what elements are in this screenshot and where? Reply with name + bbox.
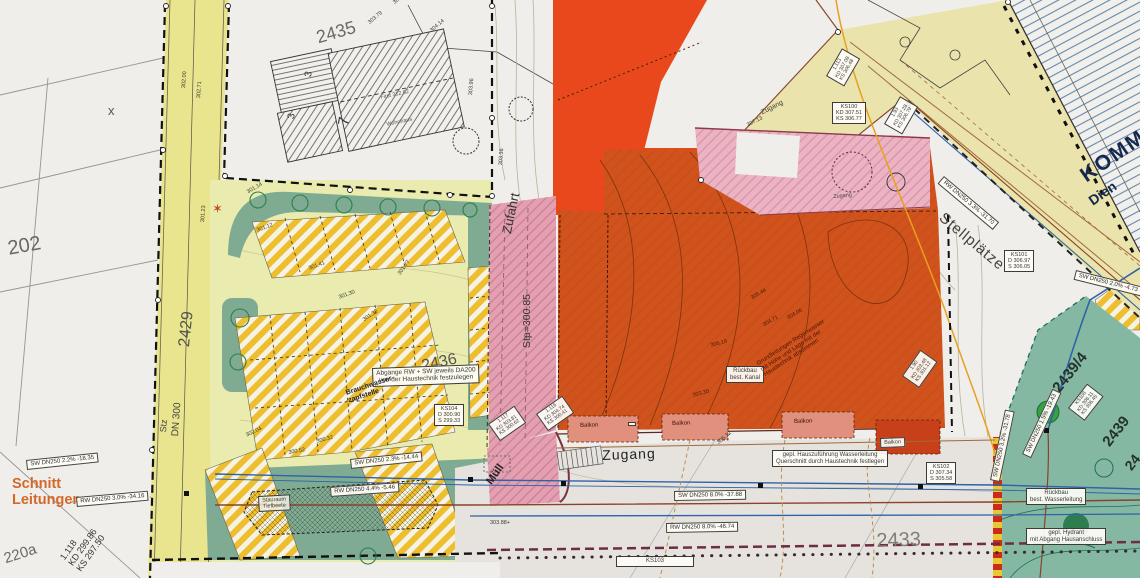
balkon-label-4: Balkon <box>880 437 905 448</box>
elev-30396: 303.96 <box>468 78 475 95</box>
dn300-label: DN 300 <box>170 402 184 437</box>
survey-star-icon: ✶ <box>212 202 223 217</box>
stz-label: Stz <box>158 419 169 433</box>
rueckbau-wasser-annotation: Rückbau best. Wasserleitung <box>1026 488 1086 505</box>
x-mark: x <box>108 104 115 119</box>
elev-30123: 301.23 <box>200 205 207 222</box>
schnitt-leitungen-label: Schnitt Leitungen <box>12 476 81 508</box>
shaft-ks104-box: KS104 D 300.90 S 299.33 <box>434 404 464 426</box>
rueckbau-kanal-annotation: Rückbau best. Kanal <box>726 366 764 383</box>
pipe-label-rw3: RW DN250 8.0% -46.74 <box>666 522 738 533</box>
stp-label: Stp=300.85 <box>522 294 534 348</box>
shaft-ks103-box: KS103 <box>616 556 694 567</box>
elev-30388: 303.88+ <box>490 520 510 526</box>
shaft-ks101-box: KS101 D 306.97 S 306.05 <box>1004 250 1034 272</box>
parcel-2433-label: 2433 <box>876 528 921 552</box>
balkon-label-1: Balkon <box>580 422 599 429</box>
pipe-label-sw3: SW DN250 8.0% -37.88 <box>674 490 746 501</box>
parcel-2429-label: 2429 <box>176 311 198 348</box>
site-plan: 202 x 220a Schnitt Leitungen 1.118 KD 29… <box>0 0 1140 578</box>
stauraum-annotation: Stauraum Tiefbeete <box>258 494 291 512</box>
elev-30345-box <box>628 422 636 426</box>
hauszufuehrung-annotation: gepl. Hauszuführung Wasserleitung Quersc… <box>772 450 888 467</box>
elev-30336: 303.36 <box>498 148 505 165</box>
balkon-label-2: Balkon <box>672 420 691 427</box>
shaft-ks102-box: KS102 D 307.34 S 305.58 <box>926 462 956 484</box>
site-plan-canvas <box>0 0 1140 578</box>
balkon-label-3: Balkon <box>794 418 813 425</box>
zugang-label: Zugang <box>602 446 656 464</box>
elev-30200: 302.00 <box>181 71 188 88</box>
shaft-ks100-box: KS100 KD 307.51 KS 306.77 <box>832 102 866 124</box>
hydrant-annotation: gepl. Hydrant mit Abgang Hausanschluss <box>1026 528 1106 545</box>
elev-30271: 302.71 <box>196 81 203 98</box>
